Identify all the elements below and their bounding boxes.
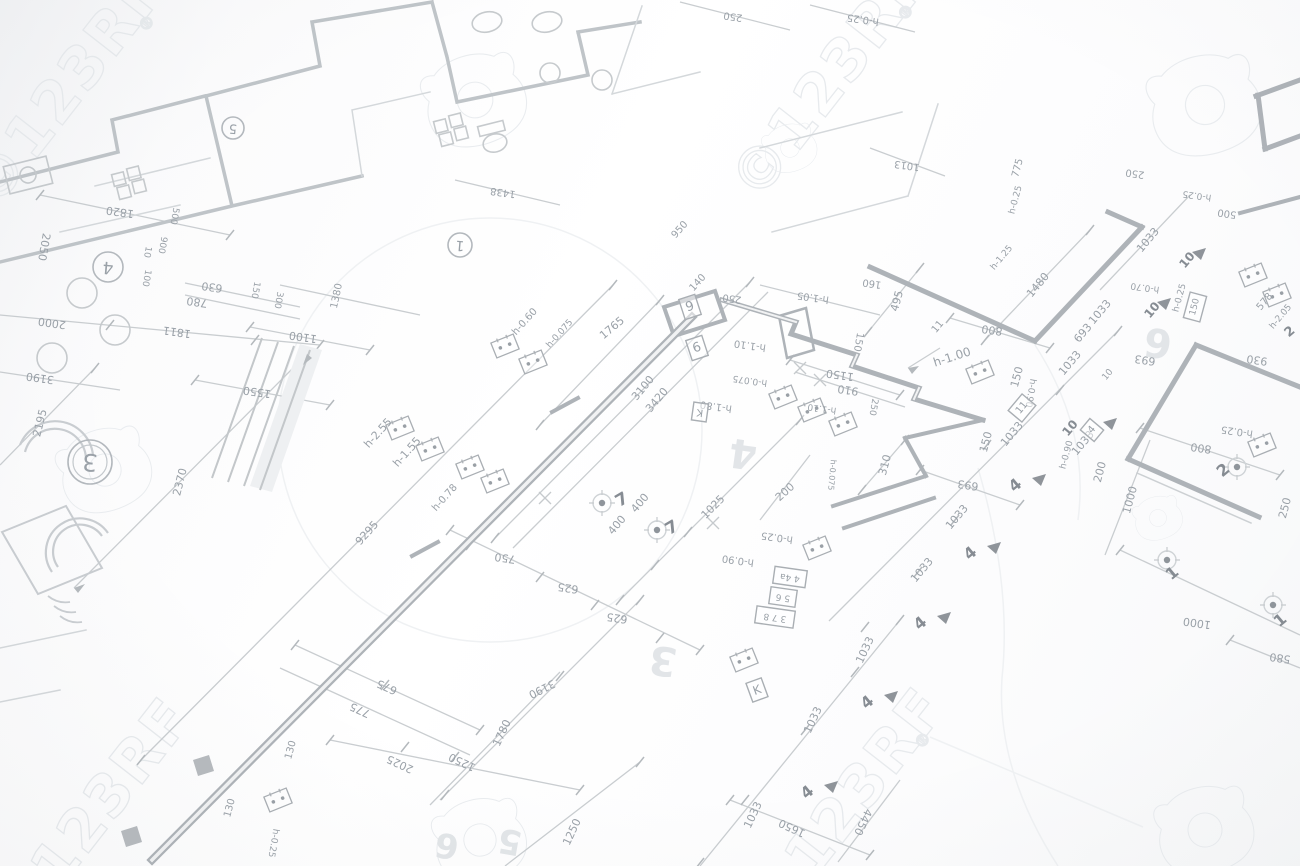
outlet-symbol-icon: [263, 786, 292, 812]
svg-text:580: 580: [1269, 650, 1292, 666]
svg-text:4: 4: [102, 257, 115, 278]
dim-label: 250: [1125, 166, 1145, 180]
dim-label: 495: [888, 289, 906, 313]
outlet-symbol-icon: [1238, 261, 1267, 287]
dim-label: 675: [375, 677, 400, 698]
svg-text:1033: 1033: [1056, 348, 1084, 378]
watermark-text: ©123RF: [716, 0, 943, 211]
x-marker-icon: [814, 374, 826, 386]
svg-text:1438: 1438: [490, 185, 517, 199]
outlet-symbol-icon: [802, 534, 831, 560]
dim-label: 950: [670, 219, 691, 241]
svg-text:150: 150: [851, 332, 865, 353]
dim-label: h-0.075: [545, 318, 576, 350]
dim-label: 580: [1269, 650, 1292, 666]
svg-text:150: 150: [249, 281, 262, 300]
flag-marker-icon: [1032, 474, 1046, 486]
dim-label: 150: [1008, 365, 1026, 389]
outlet-symbol-icon: [518, 348, 547, 374]
svg-text:h-0.25: h-0.25: [1182, 188, 1212, 202]
svg-text:h-0.25: h-0.25: [266, 828, 281, 858]
circled-axis-number: 1: [448, 233, 472, 257]
svg-text:10: 10: [1059, 417, 1080, 439]
dim-label: 1820: [105, 204, 135, 221]
svg-text:800: 800: [1190, 440, 1213, 456]
svg-text:693: 693: [957, 477, 980, 493]
svg-text:1100: 1100: [288, 329, 318, 346]
dim-label: 310: [876, 453, 894, 477]
dim-label: 1000: [1182, 615, 1212, 632]
svg-text:h-0.70: h-0.70: [1130, 280, 1160, 294]
dim-label: 200: [773, 480, 797, 504]
svg-text:5: 5: [228, 120, 238, 136]
dim-label: 1033: [1056, 348, 1084, 378]
dim-label: h-0.90: [721, 552, 754, 567]
dim-label: 160: [862, 276, 882, 290]
dim-label: 800: [1190, 440, 1213, 456]
svg-text:1: 1: [455, 237, 465, 254]
dim-label: 2050: [35, 232, 53, 262]
outlet-symbol-icon: [490, 332, 519, 358]
bold-marker-label: 10: [1059, 417, 1080, 439]
svg-text:3: 3: [81, 447, 99, 476]
svg-text:1: 1: [1162, 562, 1183, 584]
svg-text:1033: 1033: [1086, 297, 1114, 327]
dim-label: h-0.70: [1130, 280, 1160, 294]
dim-label: 630: [201, 279, 224, 295]
dim-label: 1033: [853, 635, 877, 666]
dim-label: 300: [272, 291, 285, 310]
svg-text:1033: 1033: [943, 502, 971, 532]
dim-label: 1765: [597, 314, 627, 342]
svg-text:625: 625: [606, 610, 629, 626]
axis-box-label: K: [691, 402, 708, 422]
dim-label: 930: [1246, 352, 1269, 368]
dim-label: 1811: [162, 324, 192, 341]
bold-marker-label: 7: [662, 516, 682, 539]
circled-axis-number: 4: [93, 252, 123, 282]
bold-marker-label: 1: [1162, 562, 1183, 584]
dim-label: 1033: [801, 705, 825, 736]
svg-text:1150: 1150: [825, 367, 855, 384]
svg-text:h-0.90: h-0.90: [721, 552, 754, 567]
dim-label: h-0.075: [732, 373, 768, 388]
dim-label: h-0.25: [1007, 185, 1024, 216]
svg-text:1013: 1013: [894, 158, 921, 172]
svg-text:200: 200: [773, 480, 797, 504]
dim-label: 140: [688, 272, 709, 294]
svg-text:h-0.25: h-0.25: [760, 529, 793, 544]
x-markers: [539, 362, 826, 529]
svg-text:100: 100: [140, 269, 153, 288]
dim-label: h-1.05: [796, 289, 829, 304]
svg-text:500: 500: [168, 207, 181, 226]
svg-text:1550: 1550: [242, 384, 272, 401]
svg-text:1000: 1000: [1120, 485, 1140, 515]
svg-text:4: 4: [910, 612, 931, 634]
watermark-camera-icon: [49, 42, 1271, 866]
outlet-symbol-icon: [965, 358, 994, 384]
svg-text:h-1.25: h-1.25: [989, 244, 1015, 273]
svg-text:775: 775: [1010, 157, 1026, 178]
svg-text:7: 7: [662, 516, 682, 539]
svg-text:310: 310: [876, 453, 894, 477]
axis-box-label: K: [746, 678, 768, 702]
svg-text:400: 400: [628, 491, 651, 515]
outlet-symbol-icon: [455, 453, 484, 479]
svg-text:h-1.05: h-1.05: [796, 289, 829, 304]
svg-text:150: 150: [1008, 365, 1026, 389]
svg-text:1033: 1033: [741, 800, 765, 831]
dim-label: 775: [1010, 157, 1026, 178]
dim-label: h-1.00: [931, 344, 972, 369]
dim-label: 11: [930, 319, 947, 336]
svg-text:2050: 2050: [35, 232, 53, 262]
svg-text:1: 1: [1270, 609, 1291, 631]
bold-marker-label: 4: [910, 612, 931, 634]
dim-label: h-0.90: [1058, 439, 1075, 470]
dim-label: 130: [222, 797, 238, 818]
blueprint-photo: ©123RF ©123RF ©123RF ©123RF ® ® ®: [0, 0, 1300, 866]
dim-label: 250: [867, 398, 880, 417]
svg-text:250: 250: [1125, 166, 1145, 180]
svg-text:h-1.00: h-1.00: [931, 344, 972, 369]
svg-text:h-0.075: h-0.075: [826, 459, 838, 491]
svg-text:1780: 1780: [490, 718, 514, 749]
dim-label: 693: [1071, 321, 1094, 345]
dim-label: 1013: [894, 158, 921, 172]
svg-text:780: 780: [186, 294, 209, 310]
dim-label: h-0.78: [430, 482, 460, 513]
dim-label: h-0.25: [1220, 423, 1253, 438]
x-marker-icon: [539, 492, 551, 504]
svg-text:160: 160: [862, 276, 882, 290]
dim-label: 1033: [908, 555, 936, 585]
dim-label: 1033: [1086, 297, 1114, 327]
svg-text:130: 130: [222, 797, 238, 818]
dim-label: 250: [723, 9, 743, 23]
dim-label: h-0.25: [1182, 188, 1212, 202]
dim-label: 1033: [741, 800, 765, 831]
svg-text:625: 625: [557, 580, 580, 596]
bold-marker-label: 2: [1213, 459, 1234, 481]
svg-text:910: 910: [837, 382, 860, 398]
toilet-fixture: [478, 120, 510, 154]
bold-marker-label: 4: [960, 542, 981, 564]
flag-marker-icon: [1103, 418, 1117, 430]
svg-text:1820: 1820: [105, 204, 135, 221]
dim-label: 1250: [447, 750, 478, 774]
svg-text:775: 775: [348, 700, 373, 721]
dim-label: 10: [1100, 367, 1115, 382]
watermark-text: ©123RF: [733, 674, 960, 866]
dim-label: h-0.25: [760, 529, 793, 544]
dim-label: 625: [557, 580, 580, 596]
outlet-symbol-icon: [415, 435, 444, 461]
svg-text:11: 11: [930, 319, 947, 336]
cooktop-grid: [111, 166, 147, 200]
svg-text:500: 500: [1217, 206, 1237, 220]
faint-room-number: 3: [646, 635, 680, 684]
svg-text:1033: 1033: [998, 419, 1026, 449]
svg-text:4: 4: [960, 542, 981, 564]
svg-text:250: 250: [1276, 496, 1294, 520]
svg-text:1033: 1033: [801, 705, 825, 736]
svg-text:675: 675: [375, 677, 400, 698]
cooktop-grid: [433, 113, 469, 147]
svg-text:h-0.78: h-0.78: [430, 482, 460, 513]
svg-text:4: 4: [1005, 474, 1026, 496]
svg-text:1033: 1033: [853, 635, 877, 666]
dim-label: 1780: [490, 718, 514, 749]
dim-label: 400: [605, 513, 628, 537]
svg-text:1250: 1250: [447, 750, 478, 774]
dim-label: 1100: [288, 329, 318, 346]
dim-label: 900: [156, 236, 169, 255]
dim-label: 910: [837, 382, 860, 398]
dim-label: 1033: [998, 419, 1026, 449]
axis-box-label: 150: [1183, 292, 1206, 322]
svg-text:200: 200: [1091, 460, 1109, 484]
dim-label: 1000: [1120, 485, 1140, 515]
spotlight-symbols: [589, 454, 1286, 618]
svg-text:1033: 1033: [908, 555, 936, 585]
bold-marker-label: 2: [1282, 323, 1299, 340]
axis-box-label: 5 6: [769, 587, 797, 608]
dim-label: 1150: [825, 367, 855, 384]
dim-label: 780: [186, 294, 209, 310]
dim-label: h-0.075: [826, 459, 838, 491]
svg-text:495: 495: [888, 289, 906, 313]
svg-text:150: 150: [977, 430, 995, 454]
dim-label: 2000: [37, 315, 67, 332]
dim-label: h-0.60: [510, 306, 540, 337]
flag-marker-icon: [937, 612, 951, 624]
svg-text:400: 400: [605, 513, 628, 537]
dim-label: 150: [249, 281, 262, 300]
svg-text:h-0.25: h-0.25: [1220, 423, 1253, 438]
svg-text:693: 693: [1071, 321, 1094, 345]
circled-axis-number: 5: [222, 117, 244, 139]
svg-text:2: 2: [1213, 459, 1234, 481]
svg-text:h-0.90: h-0.90: [1058, 439, 1075, 470]
axis-box-label: 4 4a: [773, 566, 808, 587]
svg-text:300: 300: [272, 291, 285, 310]
dim-label: h-1.10: [733, 337, 766, 352]
dim-label: 500: [1217, 206, 1237, 220]
svg-text:950: 950: [670, 219, 691, 241]
dim-label: 693: [957, 477, 980, 493]
svg-text:250: 250: [723, 9, 743, 23]
dim-label: h-0.25: [266, 828, 281, 858]
bold-marker-label: 1: [1270, 609, 1291, 631]
svg-text:2370: 2370: [170, 467, 189, 497]
dim-label: 775: [348, 700, 373, 721]
faint-room-number: 5: [495, 819, 525, 863]
svg-text:1765: 1765: [597, 314, 627, 342]
dim-label: 750: [494, 550, 517, 566]
svg-text:630: 630: [201, 279, 224, 295]
flag-marker-icon: [987, 542, 1001, 554]
svg-text:930: 930: [1246, 352, 1269, 368]
svg-text:1811: 1811: [162, 324, 192, 341]
svg-text:h-0.25: h-0.25: [1007, 185, 1024, 216]
blueprint-canvas: ©123RF ©123RF ©123RF ©123RF ® ® ®: [0, 0, 1300, 866]
dim-label: 400: [628, 491, 651, 515]
svg-text:4: 4: [857, 691, 878, 713]
outlet-symbol-icon: [480, 467, 509, 493]
svg-text:h-0.075: h-0.075: [545, 318, 576, 350]
dim-label: 200: [1091, 460, 1109, 484]
svg-text:2000: 2000: [37, 315, 67, 332]
svg-text:1380: 1380: [329, 282, 345, 309]
svg-text:1000: 1000: [1182, 615, 1212, 632]
dim-label: 500: [168, 207, 181, 226]
watermark-layer: ©123RF ©123RF ©123RF ©123RF ® ® ®: [0, 0, 1271, 866]
svg-text:10: 10: [141, 245, 153, 258]
basin-fixture: [470, 9, 612, 90]
svg-text:h-1.10: h-1.10: [733, 337, 766, 352]
svg-text:h-0.60: h-0.60: [510, 306, 540, 337]
faint-room-number: 6: [432, 823, 462, 866]
dim-label: 250: [1276, 496, 1294, 520]
bold-marker-label: 4: [857, 691, 878, 713]
dim-label: 130: [283, 739, 299, 760]
outlet-symbol-icon: [768, 383, 797, 409]
dim-label: 2370: [170, 467, 189, 497]
faint-room-number: 4: [726, 428, 760, 477]
dim-label: 150: [977, 430, 995, 454]
dim-label: 10: [141, 245, 153, 258]
axis-box-label: 3 7 8: [755, 606, 796, 628]
bold-marker-label: 4: [1005, 474, 1026, 496]
outlet-symbol-icon: [729, 646, 758, 672]
svg-text:250: 250: [867, 398, 880, 417]
dim-label: 1033: [943, 502, 971, 532]
dim-label: 100: [140, 269, 153, 288]
svg-text:5 6: 5 6: [775, 591, 791, 603]
svg-text:2: 2: [1282, 323, 1299, 340]
dim-label: h-1.25: [989, 244, 1015, 273]
svg-text:10: 10: [1100, 367, 1115, 382]
dim-label: 150: [851, 332, 865, 353]
dim-label: 625: [606, 610, 629, 626]
svg-text:130: 130: [283, 739, 299, 760]
svg-text:140: 140: [688, 272, 709, 294]
dim-label: 1380: [329, 282, 345, 309]
svg-text:900: 900: [156, 236, 169, 255]
svg-text:750: 750: [494, 550, 517, 566]
svg-text:h-0.075: h-0.075: [732, 373, 768, 388]
dim-label: 1550: [242, 384, 272, 401]
dim-label: 1438: [490, 185, 517, 199]
